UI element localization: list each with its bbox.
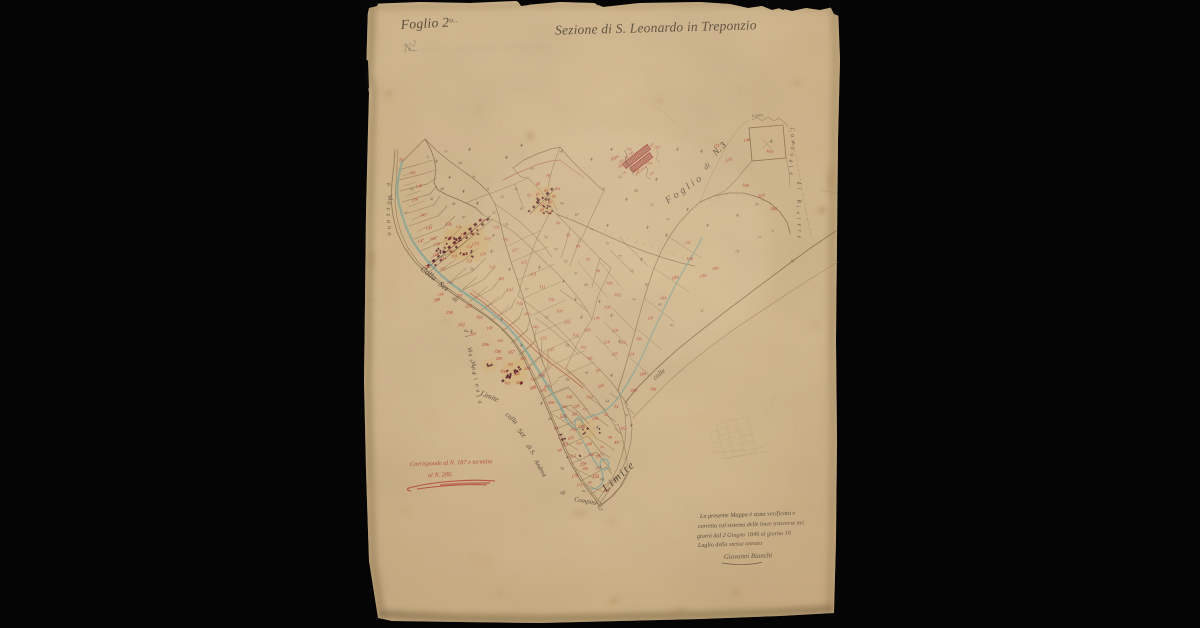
svg-text:296: 296 bbox=[482, 342, 490, 347]
svg-text:209: 209 bbox=[539, 387, 546, 393]
svg-text:31: 31 bbox=[625, 413, 629, 417]
svg-text:214: 214 bbox=[576, 441, 582, 445]
svg-text:2: 2 bbox=[412, 39, 416, 48]
svg-text:24: 24 bbox=[605, 399, 609, 404]
svg-text:Foglio 2o..: Foglio 2o.. bbox=[399, 14, 458, 32]
svg-text:38: 38 bbox=[440, 187, 444, 191]
svg-text:41: 41 bbox=[430, 197, 434, 201]
svg-text:121: 121 bbox=[456, 225, 462, 229]
svg-text:201: 201 bbox=[562, 404, 568, 409]
svg-text:193: 193 bbox=[592, 475, 600, 480]
svg-text:145: 145 bbox=[430, 236, 437, 241]
svg-text:198: 198 bbox=[588, 452, 594, 457]
svg-text:128: 128 bbox=[452, 241, 458, 246]
svg-text:127: 127 bbox=[460, 232, 468, 238]
svg-text:301: 301 bbox=[508, 362, 514, 367]
svg-text:159: 159 bbox=[465, 303, 473, 309]
svg-text:118: 118 bbox=[592, 416, 599, 421]
svg-text:506: 506 bbox=[560, 415, 568, 420]
svg-text:riga sbiadita di matita: riga sbiadita di matita bbox=[455, 53, 527, 63]
svg-text:112: 112 bbox=[620, 425, 628, 431]
svg-text:304: 304 bbox=[524, 366, 531, 371]
svg-text:167: 167 bbox=[508, 350, 516, 356]
svg-text:196: 196 bbox=[582, 466, 589, 471]
svg-text:48: 48 bbox=[608, 435, 613, 440]
svg-text:164: 164 bbox=[497, 339, 503, 343]
svg-text:64: 64 bbox=[588, 480, 593, 485]
svg-text:52: 52 bbox=[604, 413, 608, 417]
svg-text:50: 50 bbox=[600, 445, 604, 449]
svg-text:171: 171 bbox=[576, 482, 583, 488]
svg-text:29: 29 bbox=[472, 175, 476, 179]
svg-text:302: 302 bbox=[516, 380, 524, 385]
svg-text:26: 26 bbox=[548, 417, 552, 421]
svg-text:141: 141 bbox=[420, 212, 427, 217]
svg-text:95: 95 bbox=[585, 371, 589, 375]
svg-text:198: 198 bbox=[630, 388, 638, 393]
svg-text:208: 208 bbox=[548, 400, 555, 405]
svg-text:144: 144 bbox=[440, 256, 448, 261]
svg-text:44: 44 bbox=[452, 202, 456, 206]
svg-text:299: 299 bbox=[496, 356, 503, 361]
svg-text:161: 161 bbox=[476, 314, 484, 320]
svg-text:06: 06 bbox=[582, 489, 586, 493]
svg-text:246: 246 bbox=[578, 425, 586, 430]
svg-text:290: 290 bbox=[446, 311, 454, 316]
svg-text:78: 78 bbox=[560, 467, 564, 471]
svg-text:303: 303 bbox=[520, 355, 527, 361]
svg-text:152: 152 bbox=[440, 267, 446, 271]
svg-text:292: 292 bbox=[458, 322, 466, 328]
svg-text:31: 31 bbox=[486, 187, 490, 191]
